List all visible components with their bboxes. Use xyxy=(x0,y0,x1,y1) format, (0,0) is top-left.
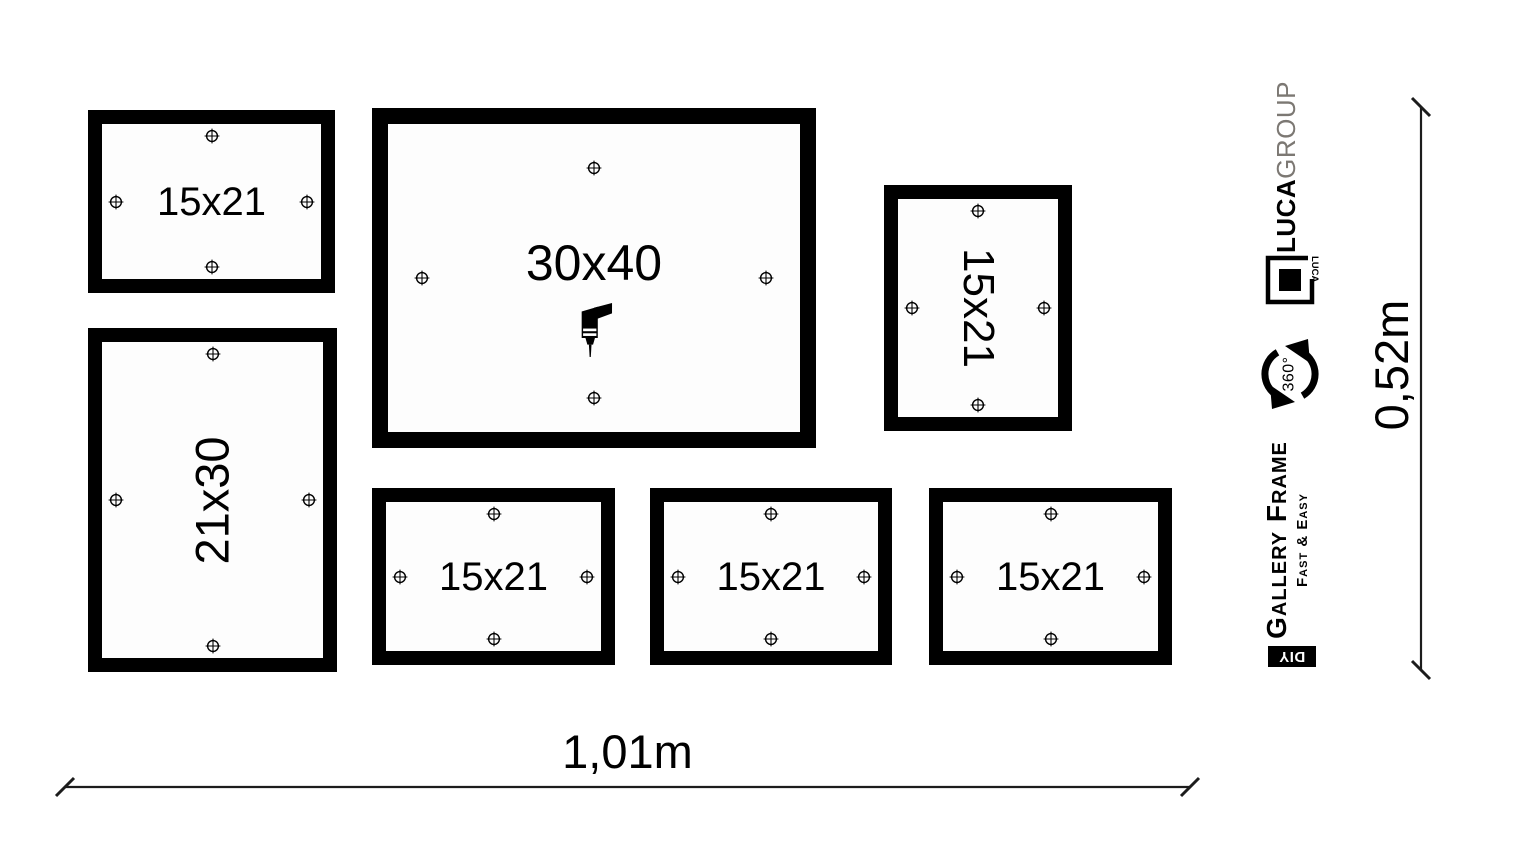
luca-logo-icon: LUCA xyxy=(1262,250,1324,310)
frame-15x21-bottom-right: 15x21 xyxy=(929,488,1172,665)
crosshair-drill-point-icon xyxy=(1043,506,1059,522)
crosshair-drill-point-icon xyxy=(299,194,315,210)
crosshair-drill-point-icon xyxy=(414,270,430,286)
crosshair-drill-point-icon xyxy=(763,506,779,522)
frame-size-label: 30x40 xyxy=(526,238,662,288)
crosshair-drill-point-icon xyxy=(1136,569,1152,585)
frame-15x21-bottom-left: 15x21 xyxy=(372,488,615,665)
crosshair-drill-point-icon xyxy=(204,128,220,144)
crosshair-drill-point-icon xyxy=(970,203,986,219)
crosshair-drill-point-icon xyxy=(586,160,602,176)
crosshair-drill-point-icon xyxy=(586,390,602,406)
frame-size-label: 15x21 xyxy=(157,182,266,222)
luca-group-bold-text: LUCA xyxy=(1273,179,1299,253)
frame-size-label: 15x21 xyxy=(956,248,1000,368)
frame-size-label: 15x21 xyxy=(717,557,826,597)
frame-size-label: 21x30 xyxy=(189,436,236,564)
crosshair-drill-point-icon xyxy=(970,397,986,413)
crosshair-drill-point-icon xyxy=(758,270,774,286)
crosshair-drill-point-icon xyxy=(205,346,221,362)
crosshair-drill-point-icon xyxy=(904,300,920,316)
width-dimension-label: 1,01m xyxy=(65,728,1190,775)
crosshair-drill-point-icon xyxy=(108,194,124,210)
luca-group-logotype: LUCAGROUP xyxy=(1273,87,1303,247)
product-tagline: Fast & Easy xyxy=(1295,435,1310,645)
crosshair-drill-point-icon xyxy=(1043,631,1059,647)
height-dimension-label: 0,52m xyxy=(1368,275,1416,455)
luca-logo-text: LUCA xyxy=(1309,256,1320,283)
drill-icon xyxy=(575,302,613,357)
crosshair-drill-point-icon xyxy=(1036,300,1052,316)
product-name: Gallery Frame xyxy=(1263,435,1291,645)
crosshair-drill-point-icon xyxy=(856,569,872,585)
frame-15x21-top-left: 15x21 xyxy=(88,110,335,293)
frame-21x30-left-vertical: 21x30 xyxy=(88,328,337,672)
rotate-360-label-wrap: 360° xyxy=(1252,336,1328,412)
diy-badge: DIY xyxy=(1268,646,1316,667)
rotate-360-label: 360° xyxy=(1282,356,1298,391)
crosshair-drill-point-icon xyxy=(301,492,317,508)
frame-content: 30x40 xyxy=(526,124,662,357)
frame-30x40-center: 30x40 xyxy=(372,108,816,448)
frame-15x21-bottom-middle: 15x21 xyxy=(650,488,892,665)
crosshair-drill-point-icon xyxy=(486,631,502,647)
crosshair-drill-point-icon xyxy=(108,492,124,508)
frame-15x21-right-vertical: 15x21 xyxy=(884,185,1072,431)
gallery-wall-hanging-diagram: 15x21 30x40 15x21 xyxy=(0,0,1513,854)
crosshair-drill-point-icon xyxy=(205,638,221,654)
frame-size-label: 15x21 xyxy=(439,557,548,597)
product-branding: Gallery Frame Fast & Easy xyxy=(1263,435,1315,645)
rotate-360-icon: 360° xyxy=(1252,336,1328,412)
crosshair-drill-point-icon xyxy=(204,259,220,275)
crosshair-drill-point-icon xyxy=(763,631,779,647)
crosshair-drill-point-icon xyxy=(949,569,965,585)
frame-size-label: 15x21 xyxy=(996,557,1105,597)
luca-group-light-text: GROUP xyxy=(1273,81,1299,179)
crosshair-drill-point-icon xyxy=(486,506,502,522)
crosshair-drill-point-icon xyxy=(579,569,595,585)
diy-badge-label: DIY xyxy=(1279,649,1306,664)
crosshair-drill-point-icon xyxy=(670,569,686,585)
crosshair-drill-point-icon xyxy=(392,569,408,585)
